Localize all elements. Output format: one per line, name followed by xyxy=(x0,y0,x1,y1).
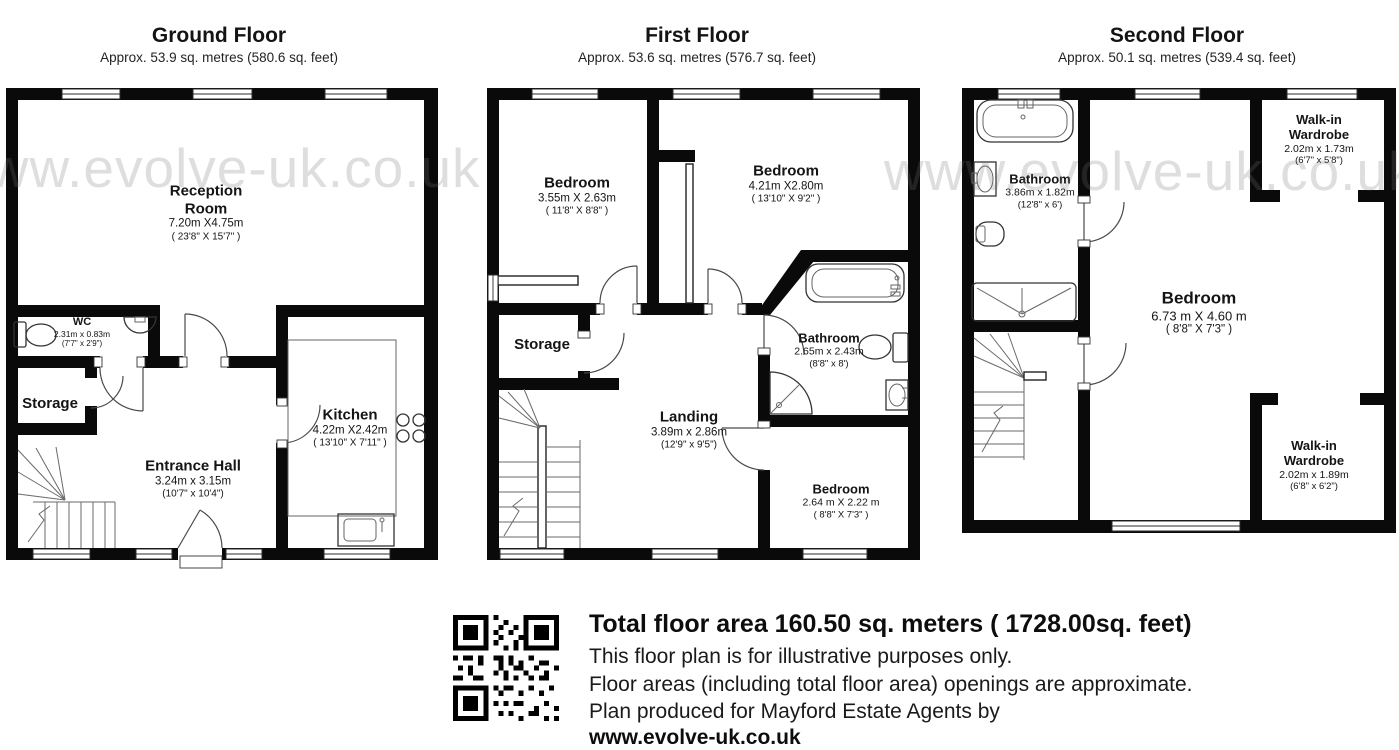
bedroom-door-arc xyxy=(1084,343,1126,385)
partition-wall xyxy=(686,164,693,303)
room-dims-metric: 2.31m x 0.83m xyxy=(54,329,110,339)
room-name: Storage xyxy=(514,336,570,354)
room-label-landing: Landing 3.89m x 2.86m (12'9" x 9'5") xyxy=(651,408,727,451)
room-dims-imperial: (10'7" x 10'4") xyxy=(134,489,252,501)
front-door-threshold xyxy=(180,556,222,568)
second-floor-title: Second Floor xyxy=(1110,24,1244,48)
room-dims-metric: 4.21m X2.80m xyxy=(749,180,824,194)
stair-rail xyxy=(1024,372,1046,380)
room-dims-imperial: (12'8" x 6') xyxy=(1005,199,1074,210)
room-label-storage-first: Storage xyxy=(514,336,570,354)
first-floor-title: First Floor xyxy=(645,24,749,48)
room-label-wc: WC 2.31m x 0.83m (7'7" x 2'9") xyxy=(54,316,110,348)
toilet-bowl xyxy=(26,324,56,346)
front-door-leaf xyxy=(178,510,200,548)
footer-total-area: Total floor area 160.50 sq. meters ( 172… xyxy=(589,610,1192,639)
second-stairs xyxy=(974,333,1046,460)
room-dims-imperial: (7'7" x 2'9") xyxy=(54,339,110,348)
room-label-bedroom-first-bottom: Bedroom 2.64 m X 2.22 m ( 8'8" X 7'3" ) xyxy=(802,482,879,521)
room-dims-metric: 3.55m X 2.63m xyxy=(538,192,616,206)
ground-floor-title: Ground Floor xyxy=(152,24,286,48)
room-dims-imperial: (8'8" x 8') xyxy=(794,358,863,369)
toilet-bowl xyxy=(859,335,891,359)
room-dims-metric: 6.73 m X 4.60 m xyxy=(1151,309,1246,324)
room-dims-imperial: (6'7" x 5'8") xyxy=(1273,155,1365,166)
room-name: Landing xyxy=(651,408,727,426)
room-label-reception: Reception Room 7.20m X4.75m ( 23'8" X 15… xyxy=(147,183,265,244)
room-dims-metric: 3.86m x 1.82m xyxy=(1005,187,1074,199)
bath-tap xyxy=(1027,100,1033,108)
fitted-wardrobe xyxy=(498,276,578,285)
room-name: Bedroom xyxy=(749,162,824,180)
room-name: Reception Room xyxy=(147,183,265,218)
hob-ring xyxy=(397,414,409,426)
room-name: Entrance Hall xyxy=(134,457,252,475)
room-name: Walk-in Wardrobe xyxy=(1273,112,1365,143)
bedroom-left-door-arc xyxy=(600,266,637,303)
first-stairs xyxy=(499,389,580,548)
room-name: Bathroom xyxy=(1005,172,1074,187)
bedroom-right-door-arc xyxy=(708,269,742,303)
room-label-kitchen: Kitchen 4.22m X2.42m ( 13'10" X 7'11" ) xyxy=(313,406,388,449)
room-label-entrance-hall: Entrance Hall 3.24m x 3.15m (10'7" x 10'… xyxy=(134,457,252,500)
room-dims-metric: 2.64 m X 2.22 m xyxy=(802,497,879,509)
bedroom-bottom-door-arc xyxy=(722,428,764,470)
ground-floor-subtitle: Approx. 53.9 sq. metres (580.6 sq. feet) xyxy=(100,50,338,65)
room-label-bathroom-first: Bathroom 2.65m x 2.43m (8'8" x 8') xyxy=(794,331,863,370)
footer-website: www.evolve-uk.co.uk xyxy=(589,726,801,750)
wc-sink-tap xyxy=(135,317,145,322)
room-dims-imperial: ( 11'8" X 8'8" ) xyxy=(538,206,616,218)
room-name: WC xyxy=(54,316,110,329)
bathroom-door-arc xyxy=(1084,202,1124,242)
stair-rail xyxy=(538,426,546,548)
reception-door-arc xyxy=(185,314,227,356)
room-label-wardrobe-top: Walk-in Wardrobe 2.02m x 1.73m (6'7" x 5… xyxy=(1273,112,1365,166)
hob-ring xyxy=(413,414,425,426)
room-label-storage-ground: Storage xyxy=(22,395,78,413)
floorplan-page: { "watermark": { "text": "www.evolve-uk.… xyxy=(0,0,1399,741)
shower-tray xyxy=(972,283,1076,321)
room-name: Walk-in Wardrobe xyxy=(1268,438,1360,469)
room-dims-metric: 2.02m x 1.89m xyxy=(1268,469,1360,481)
room-name: Bathroom xyxy=(794,331,863,346)
hob-ring xyxy=(397,430,409,442)
first-floor-subtitle: Approx. 53.6 sq. metres (576.7 sq. feet) xyxy=(578,50,816,65)
hob-ring xyxy=(413,430,425,442)
toilet-cistern xyxy=(893,333,908,362)
room-dims-imperial: ( 8'8" X 7'3" ) xyxy=(1151,324,1246,338)
room-label-bedroom-first-left: Bedroom 3.55m X 2.63m ( 11'8" X 8'8" ) xyxy=(538,174,616,217)
storage-door-arc xyxy=(584,333,624,373)
second-floor-subtitle: Approx. 50.1 sq. metres (539.4 sq. feet) xyxy=(1058,50,1296,65)
room-dims-imperial: ( 23'8" X 15'7" ) xyxy=(147,232,265,244)
room-dims-metric: 3.24m x 3.15m xyxy=(134,475,252,489)
room-label-wardrobe-bottom: Walk-in Wardrobe 2.02m x 1.89m (6'8" x 6… xyxy=(1268,438,1360,492)
footer-disclaimer-1: This floor plan is for illustrative purp… xyxy=(589,645,1012,669)
bath-tap xyxy=(1018,100,1024,108)
room-name: Bedroom xyxy=(802,482,879,497)
room-dims-imperial: (12'9" x 9'5") xyxy=(651,440,727,452)
room-label-bedroom-first-right: Bedroom 4.21m X2.80m ( 13'10" X 9'2" ) xyxy=(749,162,824,205)
room-name: Kitchen xyxy=(313,406,388,424)
room-name: Bedroom xyxy=(1151,289,1246,309)
room-label-bathroom-second: Bathroom 3.86m x 1.82m (12'8" x 6') xyxy=(1005,172,1074,211)
room-dims-metric: 7.20m X4.75m xyxy=(147,218,265,232)
footer-disclaimer-2: Floor areas (including total floor area)… xyxy=(589,673,1193,697)
room-name: Storage xyxy=(22,395,78,413)
room-label-bedroom-second: Bedroom 6.73 m X 4.60 m ( 8'8" X 7'3" ) xyxy=(1151,289,1246,338)
room-dims-metric: 4.22m X2.42m xyxy=(313,424,388,438)
qr-code xyxy=(453,615,559,721)
room-dims-imperial: (6'8" x 6'2") xyxy=(1268,481,1360,492)
room-dims-metric: 2.02m x 1.73m xyxy=(1273,143,1365,155)
ground-stairs xyxy=(18,447,115,548)
room-name: Bedroom xyxy=(538,174,616,192)
room-dims-imperial: ( 13'10" X 9'2" ) xyxy=(749,194,824,206)
room-dims-imperial: ( 13'10" X 7'11" ) xyxy=(313,438,388,450)
room-dims-metric: 2.65m x 2.43m xyxy=(794,346,863,358)
room-dims-imperial: ( 8'8" X 7'3" ) xyxy=(802,509,879,520)
room-dims-metric: 3.89m x 2.86m xyxy=(651,426,727,440)
front-door-arc xyxy=(200,510,222,548)
second-bathroom-fixtures xyxy=(972,100,1076,321)
footer-produced-for: Plan produced for Mayford Estate Agents … xyxy=(589,700,1000,724)
